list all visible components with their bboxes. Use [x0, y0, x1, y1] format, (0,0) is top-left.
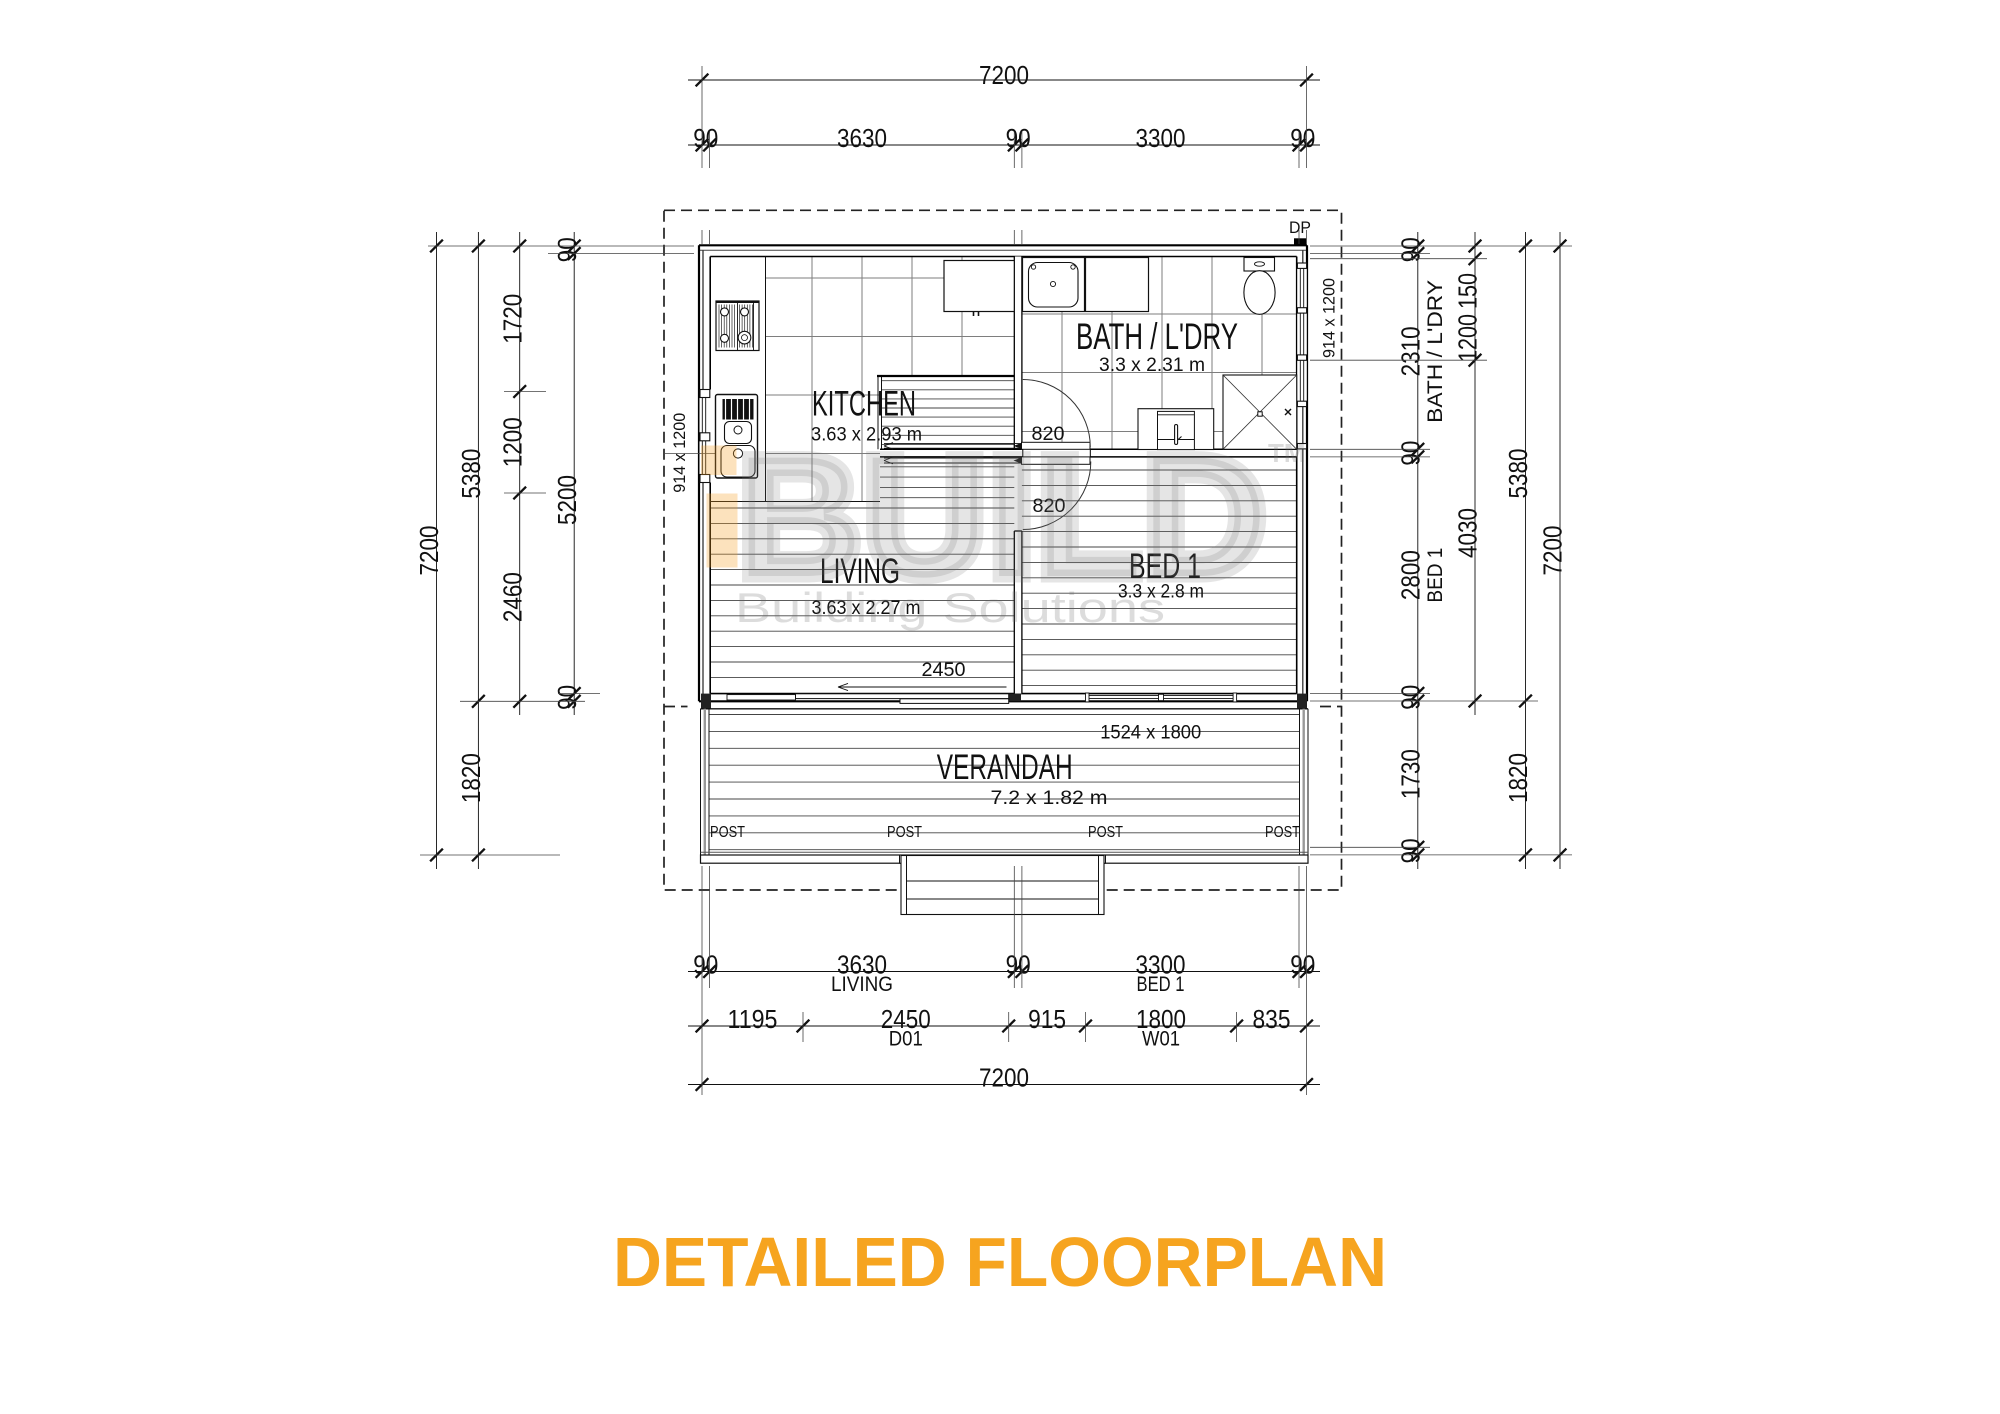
svg-text:POST: POST [1088, 824, 1123, 841]
svg-text:1200: 1200 [498, 417, 528, 467]
svg-text:4030: 4030 [1453, 508, 1483, 558]
svg-text:90: 90 [1396, 441, 1426, 466]
svg-text:7200: 7200 [979, 60, 1029, 90]
svg-text:5380: 5380 [1503, 449, 1533, 499]
svg-text:POST: POST [887, 824, 922, 841]
svg-text:835: 835 [1253, 1004, 1291, 1034]
svg-text:90: 90 [1006, 950, 1031, 980]
svg-text:DP: DP [1289, 218, 1311, 237]
svg-text:90: 90 [1396, 685, 1426, 710]
svg-text:BED 1: BED 1 [1137, 973, 1185, 996]
svg-text:5200: 5200 [552, 475, 582, 525]
svg-text:90: 90 [1290, 123, 1315, 153]
svg-text:7.2 x 1.82 m: 7.2 x 1.82 m [991, 787, 1108, 809]
svg-text:90: 90 [1396, 838, 1426, 863]
svg-text:1730: 1730 [1396, 749, 1426, 799]
svg-text:POST: POST [710, 824, 745, 841]
svg-text:2800: 2800 [1396, 550, 1426, 600]
svg-text:914 x 1200: 914 x 1200 [1320, 278, 1339, 358]
svg-text:BATH / L'DRY: BATH / L'DRY [1076, 316, 1238, 357]
svg-text:3630: 3630 [837, 123, 887, 153]
svg-text:90: 90 [693, 950, 718, 980]
svg-text:Building Solutions: Building Solutions [735, 584, 1165, 631]
svg-text:1820: 1820 [1503, 753, 1533, 803]
svg-text:LIVING: LIVING [831, 973, 893, 996]
svg-text:2460: 2460 [498, 572, 528, 622]
svg-text:7200: 7200 [414, 526, 444, 576]
svg-text:1200: 1200 [1453, 314, 1483, 362]
svg-text:2450: 2450 [922, 659, 966, 681]
svg-text:7200: 7200 [979, 1063, 1029, 1093]
svg-text:DETAILED FLOORPLAN: DETAILED FLOORPLAN [613, 1223, 1387, 1301]
svg-text:915: 915 [1028, 1004, 1066, 1034]
svg-text:BED 1: BED 1 [1424, 548, 1447, 603]
svg-text:TM: TM [1268, 438, 1306, 468]
svg-text:W01: W01 [1142, 1028, 1180, 1051]
svg-text:3.3 x 2.31 m: 3.3 x 2.31 m [1099, 354, 1205, 376]
svg-text:KITCHEN: KITCHEN [812, 385, 916, 424]
svg-text:90: 90 [552, 685, 582, 710]
svg-text:150: 150 [1453, 273, 1483, 309]
svg-text:1720: 1720 [498, 294, 528, 344]
svg-text:914 x 1200: 914 x 1200 [670, 413, 689, 493]
svg-text:1524 x 1800: 1524 x 1800 [1100, 722, 1201, 744]
svg-text:90: 90 [552, 237, 582, 262]
svg-text:VERANDAH: VERANDAH [937, 748, 1073, 787]
svg-text:90: 90 [1290, 950, 1315, 980]
svg-text:D01: D01 [889, 1028, 923, 1051]
svg-text:90: 90 [693, 123, 718, 153]
svg-text:BATH / L'DRY: BATH / L'DRY [1424, 280, 1447, 423]
svg-text:7200: 7200 [1538, 526, 1568, 576]
svg-text:3300: 3300 [1136, 123, 1186, 153]
svg-text:90: 90 [1006, 123, 1031, 153]
svg-text:2310: 2310 [1396, 326, 1426, 376]
svg-text:POST: POST [1265, 824, 1300, 841]
svg-text:1195: 1195 [728, 1004, 778, 1034]
svg-text:5380: 5380 [456, 449, 486, 499]
svg-text:1820: 1820 [456, 753, 486, 803]
